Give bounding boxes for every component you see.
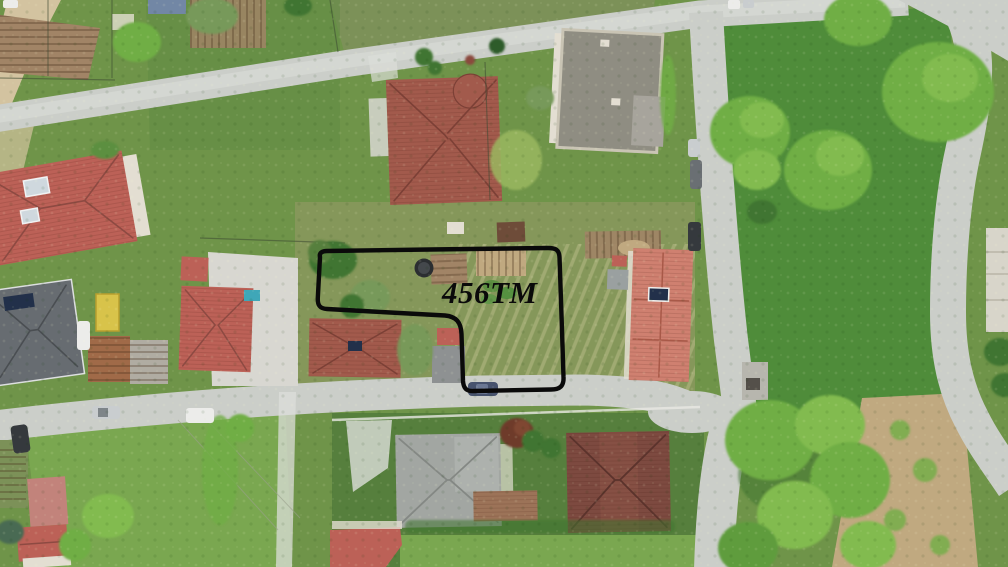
- aerial-photo-stage: 456TM: [0, 0, 1008, 567]
- aerial-photo: 456TM: [0, 0, 1008, 567]
- parcel-area-label: 456TM: [441, 275, 538, 310]
